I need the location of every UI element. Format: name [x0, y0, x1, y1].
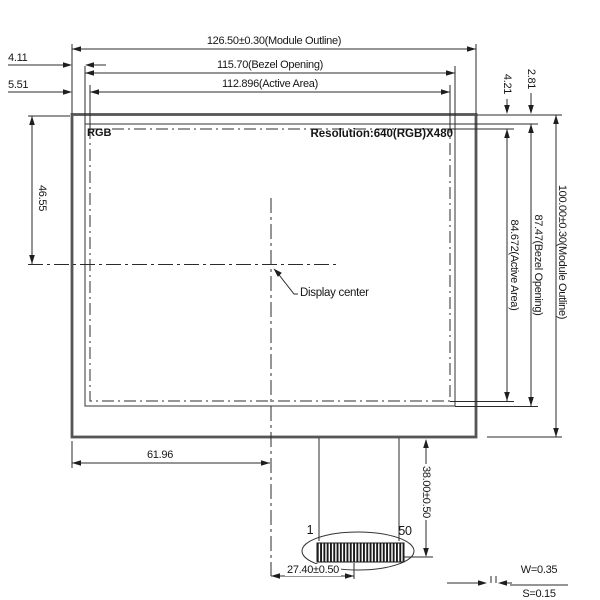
pin-50-label: 50: [398, 525, 411, 537]
panel-resolution-label: Resolution:640(RGB)X480: [310, 128, 453, 140]
dim-bezel-width-label: 115.70(Bezel Opening): [217, 59, 323, 71]
dimension-lines: [8, 44, 568, 585]
dim-bezel-top-margin-label: 2.81: [525, 69, 537, 89]
dim-bezel-left-margin-label: 4.11: [8, 52, 27, 64]
dim-fpc-width-label: 27.40±0.50: [285, 564, 341, 576]
display-center-label: Display center: [300, 287, 369, 299]
pin-1-label: 1: [307, 524, 314, 536]
panel-mode-label: RGB: [87, 127, 111, 139]
dim-module-height-label: 100.00±0.30(Module Outline): [556, 185, 568, 319]
dim-fpc-length-label: 38.00±0.50: [420, 464, 432, 520]
center-lines: [28, 198, 336, 576]
dim-active-width-label: 112.896(Active Area): [222, 78, 318, 90]
dim-active-top-margin-label: 4.21: [501, 74, 513, 94]
module-outline-rect: [72, 115, 476, 438]
dim-bezel-height-label: 87.47(Bezel Opening): [532, 214, 544, 315]
dim-active-height-label: 84.672(Active Area): [508, 220, 520, 311]
dim-center-from-top-label: 46.55: [36, 185, 48, 211]
pin-trace-space-label: S=0.15: [522, 588, 555, 600]
dim-active-left-margin-label: 5.51: [8, 79, 28, 91]
fpc-contact-band: [317, 543, 404, 562]
dim-module-width-label: 126.50±0.30(Module Outline): [207, 35, 341, 47]
dim-center-from-left-label: 61.96: [147, 449, 173, 461]
pin-trace-width-label: W=0.35: [521, 564, 557, 576]
module-outline-drawing: 126.50±0.30(Module Outline) 115.70(Bezel…: [0, 0, 600, 600]
